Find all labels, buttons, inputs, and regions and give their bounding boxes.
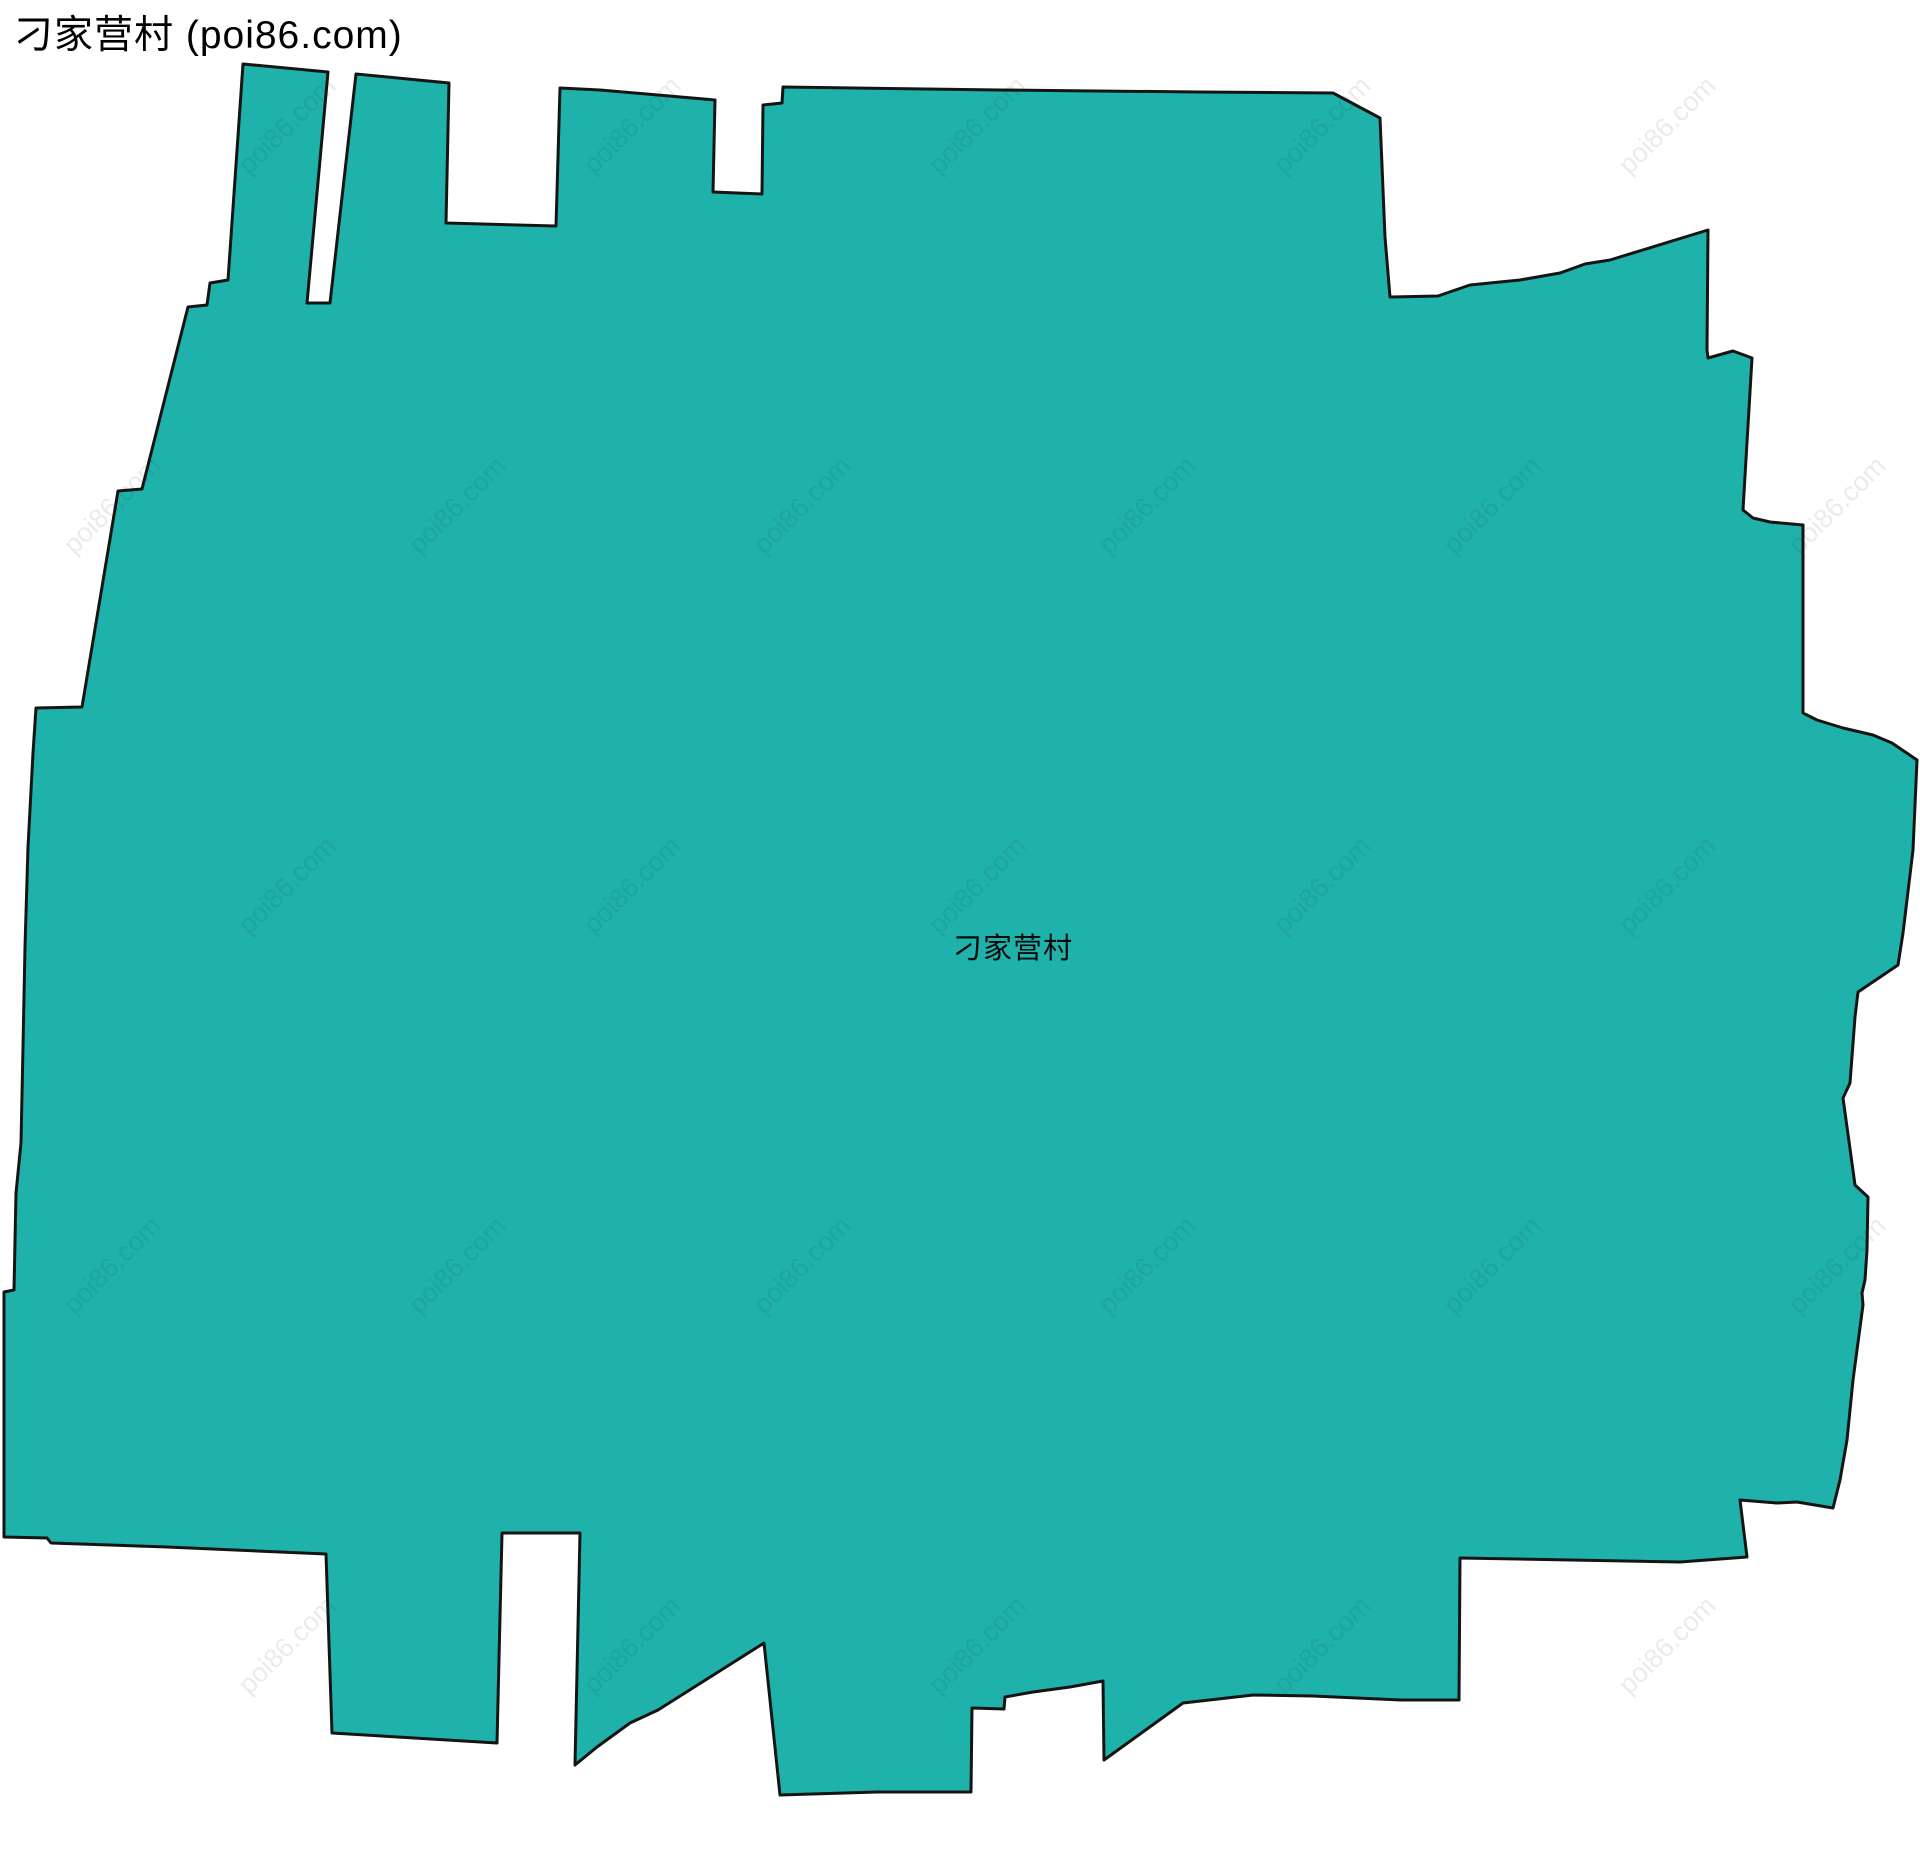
region-label: 刁家营村 [953, 925, 1073, 967]
page-title: 刁家营村 (poi86.com) [14, 4, 403, 60]
map-canvas: poi86.compoi86.compoi86.compoi86.compoi8… [0, 0, 1920, 1860]
